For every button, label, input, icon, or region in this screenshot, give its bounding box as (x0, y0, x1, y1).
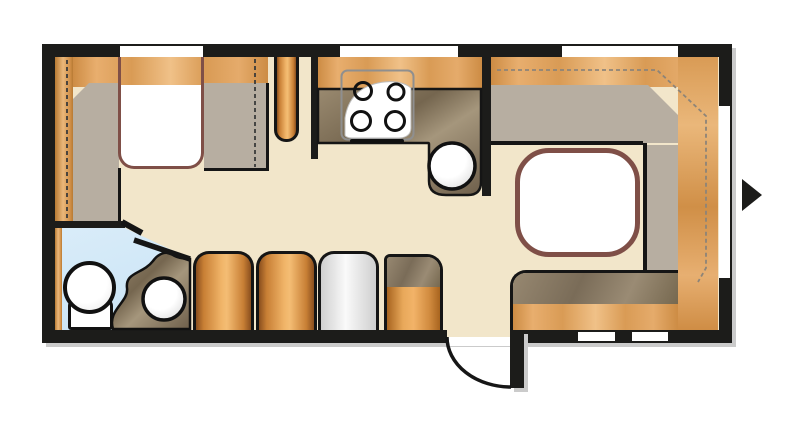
entry-door-stub-wall (510, 330, 524, 388)
bathroom-wall (55, 221, 125, 228)
cabinet-2 (256, 251, 317, 330)
window-top-2 (340, 46, 458, 57)
cabinet-4-seat (384, 254, 443, 330)
bed-outline-left (118, 57, 121, 86)
dinette-cushion-right (647, 145, 678, 272)
cabinet-3-fridge (318, 251, 379, 330)
vent-rear-1 (578, 332, 615, 341)
window-top-1 (120, 46, 203, 57)
wardrobe-cylinder (274, 57, 299, 142)
left-shelf-strip-bathroom (55, 228, 62, 330)
caravan-floorplan (0, 0, 800, 445)
dinette-bench (510, 270, 678, 330)
bed-platform-right (204, 83, 266, 170)
partition-kitchen-dinette (482, 57, 491, 196)
dinette-cushion-top-edge (491, 141, 643, 145)
kitchen-counter-band (318, 57, 482, 89)
partition-bed-kitchen (311, 57, 318, 159)
bed-outline-right (201, 57, 204, 86)
double-bed (118, 85, 204, 169)
entry-direction-arrow (742, 179, 762, 211)
dinette-cushion-right-edge (643, 143, 647, 273)
platform-edge-right (266, 83, 269, 171)
cabinet-4-wood-front (387, 287, 440, 330)
dinette-backrest-right (678, 57, 718, 330)
entry-doorway-outside (447, 337, 510, 346)
cabinet-1 (193, 251, 254, 330)
platform-edge-bottom (204, 168, 269, 171)
entry-doorway-floor (447, 330, 510, 337)
window-right (719, 106, 730, 278)
platform-edge-inner (118, 168, 121, 221)
dinette-cushion-top (491, 85, 678, 143)
bench-cushion (513, 273, 678, 304)
cabinet-4-cushion-top (387, 257, 440, 287)
window-top-3 (562, 46, 678, 57)
bed-platform-left (73, 83, 119, 221)
toilet-bowl (63, 261, 116, 314)
left-shelf-strip (55, 57, 73, 221)
bench-wood-base (513, 304, 678, 330)
dinette-table (515, 148, 640, 257)
vent-rear-2 (632, 332, 668, 341)
